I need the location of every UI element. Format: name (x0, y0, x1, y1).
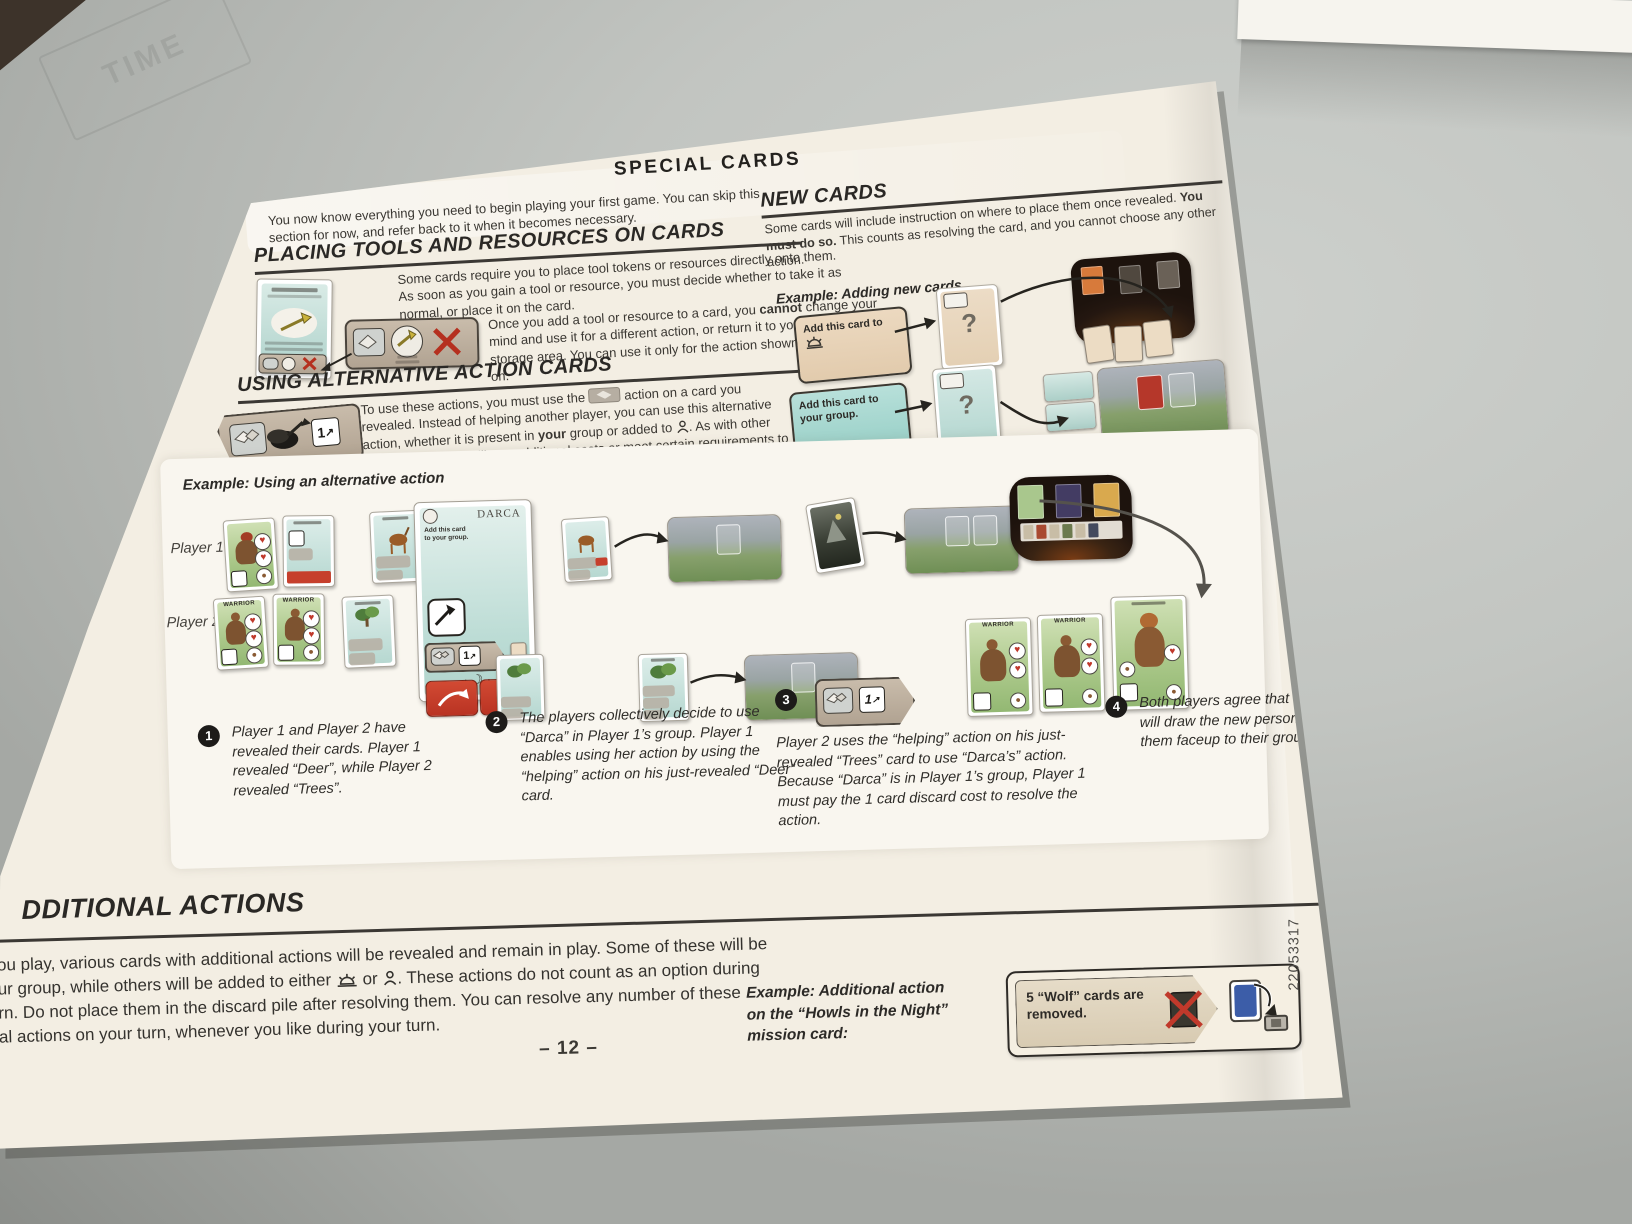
tool-chip (262, 358, 278, 370)
caption-2: 2 The players collectively decide to use… (485, 702, 800, 808)
red-chip (595, 557, 607, 566)
howls-example-label: Example: Additional action on the “Howls… (746, 976, 998, 1048)
handshake-glyph (431, 648, 450, 662)
bold-your: your (538, 425, 567, 442)
additional-heading: DDITIONAL ACTIONS (21, 887, 305, 926)
card-art (810, 501, 862, 569)
shield-tool-chip (353, 328, 386, 357)
wolf-scroll-strip: 5 “Wolf” cards are removed. (1015, 975, 1219, 1049)
caption-number: 2 (485, 711, 508, 734)
mission-card-slot (1156, 260, 1180, 290)
tree-trunk (365, 619, 368, 627)
alt-action-banner: 1↗ (424, 641, 505, 673)
revealed-deer-card (561, 516, 613, 583)
track-cell (1088, 523, 1098, 537)
caption-text: Player 2 uses the “helping” action on hi… (776, 725, 1109, 832)
box-text: Add this card to (803, 316, 884, 335)
track-cell (1023, 525, 1033, 539)
adding-cards-example-label: Example: Adding new cards (775, 277, 962, 307)
card-back-tag-icon (939, 373, 964, 390)
flip-discard-icon (1224, 974, 1292, 1042)
cost-1-card-icon: 1↗ (458, 646, 481, 667)
card-title: WARRIOR (274, 597, 324, 604)
handshake-icon (823, 687, 854, 714)
arrow-ne-icon: ↗ (324, 425, 334, 439)
mission-slot-gold (1093, 483, 1120, 518)
caption-text: The players collectively decide to use “… (519, 702, 800, 808)
alternative-action-example-panel: Example: Using an alternative action Pla… (160, 429, 1269, 869)
embossed-stamp: TIME (38, 0, 253, 141)
page-number: – 12 – (503, 1036, 634, 1062)
night-cost-box (425, 680, 478, 717)
mission-card-slot (1118, 265, 1142, 295)
helping-action-icon (588, 387, 621, 404)
track-cell (1062, 524, 1072, 538)
handshake-icon (430, 647, 454, 666)
arrow-ne-icon: ↗ (469, 651, 476, 660)
sun-icon (804, 335, 825, 350)
spear-icon (231, 570, 248, 587)
night-mission-board (1009, 474, 1133, 561)
photo-of-rulebook-page: TIME SPECIAL CARDS You now know everythi… (0, 0, 1632, 1224)
darca-instruction: Add this card to your group. (424, 526, 470, 544)
question-mark: ? (938, 306, 1000, 342)
landscape-slot (945, 516, 970, 547)
action-chips (377, 570, 403, 581)
wolf-text: 5 “Wolf” cards are removed. (1026, 986, 1177, 1024)
cost-1-card-icon: 1↗ (859, 686, 886, 713)
rulebook-sheet: SPECIAL CARDS You now know everything yo… (0, 55, 1419, 1224)
action-chips (567, 557, 598, 570)
small-teal-card (1043, 371, 1095, 403)
caption-text: Player 1 and Player 2 have revealed thei… (231, 718, 437, 802)
mission-slot-night (1055, 484, 1082, 519)
track-cell (1049, 524, 1059, 538)
figure-body (1134, 626, 1165, 667)
spear-glyph (429, 600, 460, 631)
card-title-smudge (272, 288, 318, 293)
player2-warrior-card: WARRIOR ♥ ♥ ● (213, 596, 269, 671)
new-tan-card (1142, 319, 1174, 358)
question-mark: ? (935, 387, 999, 423)
person-icon (675, 420, 689, 434)
action-chips (568, 569, 591, 580)
caption-1: 1 Player 1 and Player 2 have revealed th… (197, 718, 437, 803)
action-chips (349, 652, 376, 665)
caption-4: 4 Both players agree that Player 2 will … (1105, 688, 1359, 754)
add-card-camp-box: Add this card to (793, 306, 913, 384)
heart-icon: ♥ (303, 627, 320, 644)
sun-icon (336, 972, 358, 988)
helping-cost-strip: 1↗ (814, 676, 915, 727)
player1-darca-mini-card (282, 515, 335, 588)
alt-example-label: Example: Using an alternative action (183, 469, 445, 493)
facedown-card-tan: ? (936, 284, 1004, 371)
spear-icon (288, 530, 304, 546)
landscape-card (667, 514, 783, 583)
action-chips (348, 638, 383, 652)
landscape-card (904, 505, 1020, 574)
caption-number: 1 (198, 725, 221, 748)
cost-1-card-icon: 1↗ (311, 417, 341, 447)
tool-icon (271, 308, 317, 339)
arrow-glyph (426, 681, 477, 716)
action-chips (501, 696, 531, 708)
heart-icon: ♥ (303, 610, 320, 627)
new-tan-card (1082, 324, 1115, 364)
arrow-ne-icon: ↗ (872, 693, 880, 705)
landscape-slot (716, 524, 741, 555)
text-segment: or (358, 969, 383, 989)
small-teal-card (1045, 401, 1097, 433)
person-icon (382, 970, 397, 985)
landscape-slot (1168, 372, 1197, 408)
tool-glyph (392, 326, 420, 354)
mission-slot-green (1017, 485, 1044, 520)
handshake-glyph (230, 423, 263, 453)
player2-label: Player 2 (166, 614, 220, 631)
title-smudge (293, 521, 321, 524)
caption-number: 4 (1105, 695, 1128, 718)
red-cost-band (287, 571, 331, 583)
new-tan-card (1114, 325, 1143, 362)
figure-body (980, 649, 1007, 682)
player2-warrior-card: WARRIOR ♥ ♥ ● (273, 593, 326, 666)
mission-card-slot (1080, 266, 1104, 296)
caption-text: Both players agree that Player 2 will dr… (1139, 688, 1359, 753)
landscape-slot-red (1136, 374, 1165, 410)
player2-trees-card (341, 594, 396, 668)
figure-body (1054, 645, 1081, 678)
spear-action-icon (427, 598, 466, 637)
wolf-action-box: 5 “Wolf” cards are removed. (1006, 963, 1302, 1057)
track-cell (1036, 525, 1046, 539)
caption-number: 3 (775, 689, 798, 712)
strip-text-smudge (397, 355, 417, 358)
spear-icon (221, 648, 238, 665)
action-chips (289, 548, 313, 560)
tool-glyph (354, 329, 381, 353)
mission-track (1020, 521, 1122, 542)
placing-example-card (255, 278, 332, 379)
tool-hand-chip (391, 325, 424, 358)
landscape-slot (973, 515, 998, 546)
facedown-dark-card (805, 497, 866, 574)
box-text: Add this card to your group. (798, 393, 879, 426)
spear-icon (278, 645, 294, 661)
action-chips (643, 685, 675, 697)
player1-person-card: ♥ ♥ ● (223, 517, 279, 592)
card-back-tag-icon (943, 292, 968, 309)
figure-body (225, 620, 246, 645)
caption-3: 3 1↗ Player 2 uses the “helping” action … (775, 679, 1109, 832)
tool-blob (271, 308, 317, 339)
player1-label: Player 1 (170, 540, 224, 557)
handshake-icon (229, 422, 268, 457)
tool-chip (281, 357, 295, 371)
acorn-icon: ● (303, 644, 319, 660)
track-cell (1075, 524, 1085, 538)
text-segment: ur group, while others will be added to … (0, 970, 336, 998)
print-code: 22053317 (1286, 918, 1302, 991)
action-chips (376, 555, 411, 569)
handshake-glyph (824, 688, 850, 709)
